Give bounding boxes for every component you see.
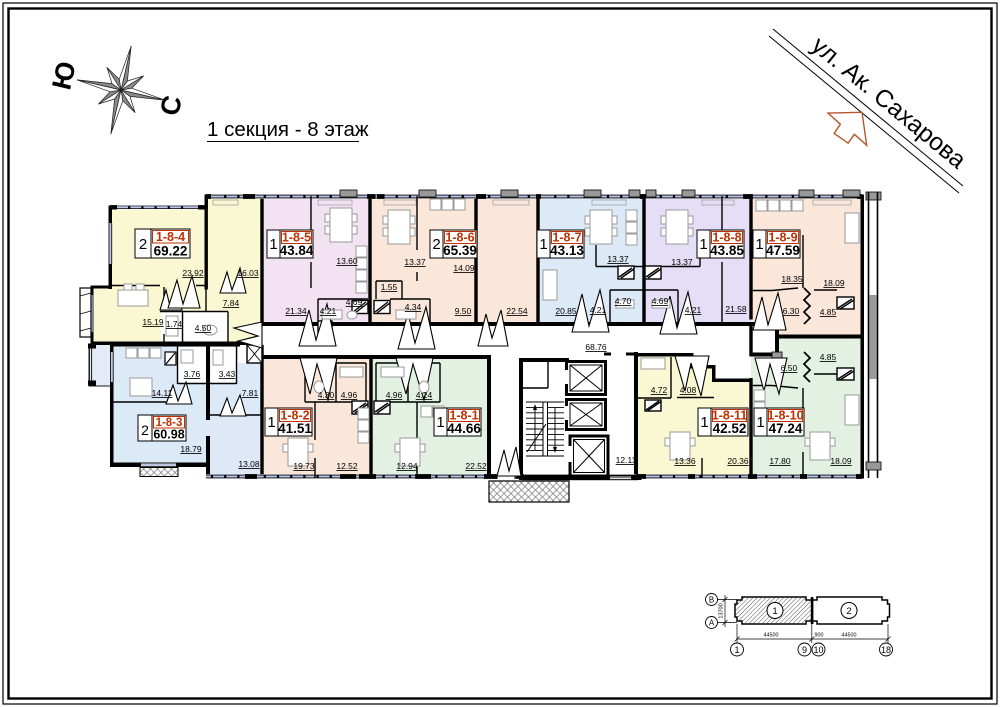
svg-text:41.51: 41.51	[278, 421, 312, 436]
svg-text:13.37: 13.37	[404, 257, 426, 267]
svg-text:22.54: 22.54	[506, 306, 528, 316]
svg-text:2: 2	[141, 422, 149, 438]
svg-text:1: 1	[269, 236, 277, 253]
svg-text:44500: 44500	[842, 633, 857, 639]
svg-text:4.85: 4.85	[820, 307, 837, 317]
svg-text:13.60: 13.60	[336, 256, 358, 266]
svg-text:1: 1	[267, 414, 275, 431]
svg-text:15.19: 15.19	[142, 317, 164, 327]
svg-text:47.24: 47.24	[769, 421, 803, 436]
svg-text:22.52: 22.52	[465, 461, 487, 471]
svg-text:20.85: 20.85	[555, 306, 577, 316]
svg-text:47.59: 47.59	[766, 243, 800, 258]
svg-text:4.08: 4.08	[680, 385, 697, 395]
svg-text:18.09: 18.09	[823, 278, 845, 288]
svg-text:1: 1	[700, 414, 708, 431]
svg-text:65.39: 65.39	[443, 243, 477, 258]
svg-text:2: 2	[139, 236, 147, 253]
svg-text:4.21: 4.21	[685, 305, 702, 315]
svg-text:6.30: 6.30	[783, 306, 800, 316]
svg-text:12.52: 12.52	[336, 461, 358, 471]
svg-text:4.34: 4.34	[405, 302, 422, 312]
svg-text:А: А	[709, 619, 715, 628]
svg-text:12.11: 12.11	[616, 455, 637, 465]
svg-text:43.85: 43.85	[710, 243, 744, 258]
svg-text:2: 2	[846, 606, 851, 617]
svg-text:42.52: 42.52	[713, 421, 747, 436]
svg-text:1: 1	[436, 414, 444, 431]
svg-text:4.24: 4.24	[416, 390, 433, 400]
svg-text:69.22: 69.22	[154, 244, 188, 259]
svg-text:17.80: 17.80	[769, 456, 791, 466]
svg-text:12.94: 12.94	[396, 461, 418, 471]
svg-text:13.37: 13.37	[671, 257, 693, 267]
svg-text:1: 1	[539, 236, 547, 253]
svg-text:44500: 44500	[764, 633, 779, 639]
svg-text:4.21: 4.21	[320, 306, 337, 316]
svg-text:43.84: 43.84	[280, 243, 314, 258]
svg-text:1: 1	[772, 606, 777, 617]
svg-text:900: 900	[815, 633, 824, 639]
svg-text:4.69: 4.69	[346, 297, 363, 307]
svg-text:14.11: 14.11	[152, 388, 173, 398]
svg-text:1: 1	[699, 236, 707, 253]
svg-text:13700: 13700	[719, 603, 725, 618]
svg-text:13.37: 13.37	[607, 254, 629, 264]
svg-text:23.92: 23.92	[182, 268, 204, 278]
svg-text:9.50: 9.50	[455, 306, 472, 316]
svg-text:1: 1	[755, 236, 763, 253]
svg-text:16.03: 16.03	[237, 268, 259, 278]
svg-text:В: В	[709, 596, 714, 605]
svg-text:4.50: 4.50	[195, 323, 212, 333]
svg-text:43.13: 43.13	[550, 243, 584, 258]
svg-text:4.96: 4.96	[341, 390, 358, 400]
svg-text:13.36: 13.36	[674, 456, 696, 466]
svg-text:4.85: 4.85	[820, 352, 837, 362]
svg-text:9: 9	[802, 645, 807, 655]
svg-text:14.09: 14.09	[453, 263, 475, 273]
svg-text:4.69: 4.69	[652, 296, 669, 306]
svg-text:4.72: 4.72	[651, 385, 668, 395]
svg-text:1.74: 1.74	[166, 319, 183, 329]
svg-text:18.79: 18.79	[180, 444, 202, 454]
svg-text:20.36: 20.36	[727, 456, 749, 466]
svg-text:3.76: 3.76	[184, 369, 201, 379]
svg-text:4.30: 4.30	[318, 390, 335, 400]
svg-text:1-8-4: 1-8-4	[156, 230, 185, 244]
svg-text:18.09: 18.09	[830, 456, 852, 466]
svg-text:1: 1	[756, 414, 764, 431]
svg-text:7.81: 7.81	[242, 388, 259, 398]
svg-text:4.70: 4.70	[615, 296, 632, 306]
svg-text:7.84: 7.84	[223, 298, 240, 308]
svg-text:18.35: 18.35	[781, 274, 803, 284]
svg-text:10: 10	[813, 645, 823, 655]
svg-text:1.55: 1.55	[381, 282, 398, 292]
svg-text:21.34: 21.34	[285, 306, 307, 316]
svg-text:60.98: 60.98	[153, 428, 184, 442]
svg-text:6.50: 6.50	[781, 363, 798, 373]
svg-text:3.43: 3.43	[219, 369, 236, 379]
svg-text:1 секция - 8 этаж: 1 секция - 8 этаж	[207, 118, 369, 141]
svg-text:68.76: 68.76	[585, 342, 607, 352]
svg-text:4.21: 4.21	[590, 305, 607, 315]
svg-text:44.66: 44.66	[447, 421, 481, 436]
svg-text:1: 1	[734, 645, 739, 655]
svg-text:21.58: 21.58	[725, 304, 747, 314]
svg-text:18: 18	[881, 645, 891, 655]
svg-text:13.08: 13.08	[238, 459, 260, 469]
svg-text:4.96: 4.96	[386, 390, 403, 400]
svg-text:2: 2	[432, 236, 440, 253]
svg-text:19.73: 19.73	[293, 461, 315, 471]
